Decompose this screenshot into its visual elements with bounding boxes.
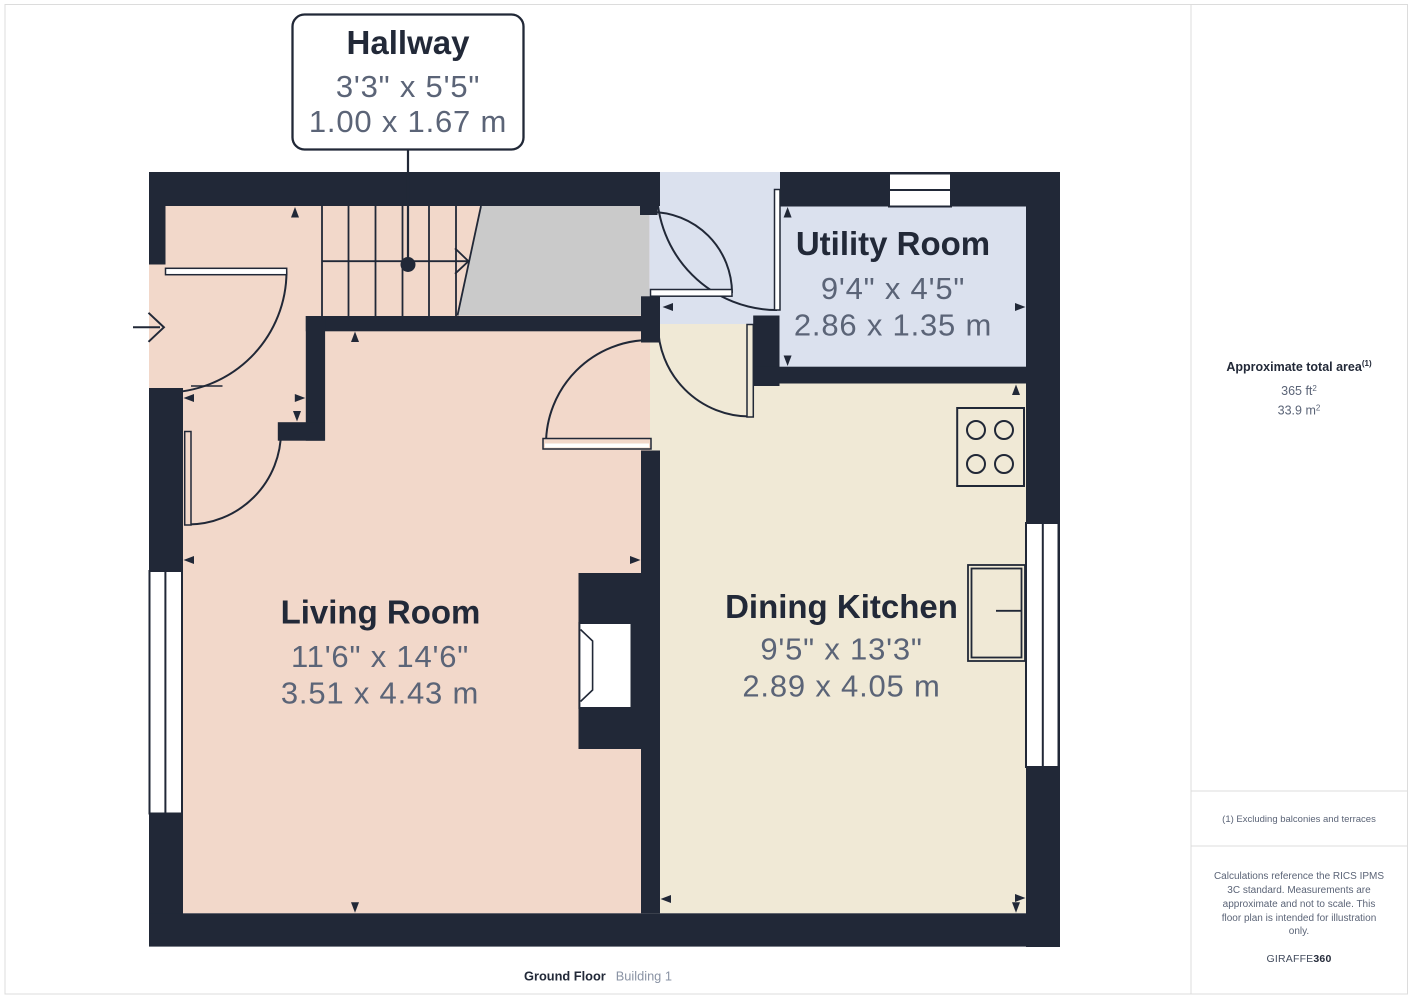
svg-text:3C standard. Measurements are: 3C standard. Measurements are	[1227, 885, 1371, 896]
svg-text:3'3" x 5'5": 3'3" x 5'5"	[336, 69, 480, 104]
svg-text:9'4" x 4'5": 9'4" x 4'5"	[821, 271, 965, 306]
svg-text:9'5" x 13'3": 9'5" x 13'3"	[760, 632, 922, 667]
svg-text:Dining Kitchen: Dining Kitchen	[725, 588, 958, 625]
svg-text:Ground FloorBuilding 1: Ground FloorBuilding 1	[524, 969, 672, 984]
svg-text:GIRAFFE360: GIRAFFE360	[1266, 953, 1331, 965]
svg-text:Approximate total area(1): Approximate total area(1)	[1226, 359, 1372, 374]
svg-text:(1) Excluding balconies and te: (1) Excluding balconies and terraces	[1222, 814, 1376, 825]
svg-text:2.86 x 1.35 m: 2.86 x 1.35 m	[794, 308, 992, 343]
svg-text:floor plan is intended for ill: floor plan is intended for illustration	[1222, 913, 1377, 924]
svg-text:Hallway: Hallway	[347, 24, 471, 61]
svg-text:11'6" x 14'6": 11'6" x 14'6"	[291, 639, 469, 674]
svg-text:only.: only.	[1289, 926, 1309, 937]
svg-text:2.89 x 4.05 m: 2.89 x 4.05 m	[742, 669, 940, 704]
svg-text:approximate and not to scale.: approximate and not to scale. This	[1223, 899, 1376, 910]
svg-text:Calculations reference the RIC: Calculations reference the RICS IPMS	[1214, 871, 1384, 882]
svg-text:Living Room: Living Room	[281, 594, 481, 631]
svg-text:3.51 x 4.43 m: 3.51 x 4.43 m	[281, 676, 479, 711]
svg-text:33.9 m2: 33.9 m2	[1278, 404, 1321, 418]
svg-text:Utility Room: Utility Room	[796, 225, 990, 262]
svg-text:365 ft2: 365 ft2	[1281, 384, 1317, 398]
svg-text:1.00 x 1.67 m: 1.00 x 1.67 m	[309, 104, 507, 139]
